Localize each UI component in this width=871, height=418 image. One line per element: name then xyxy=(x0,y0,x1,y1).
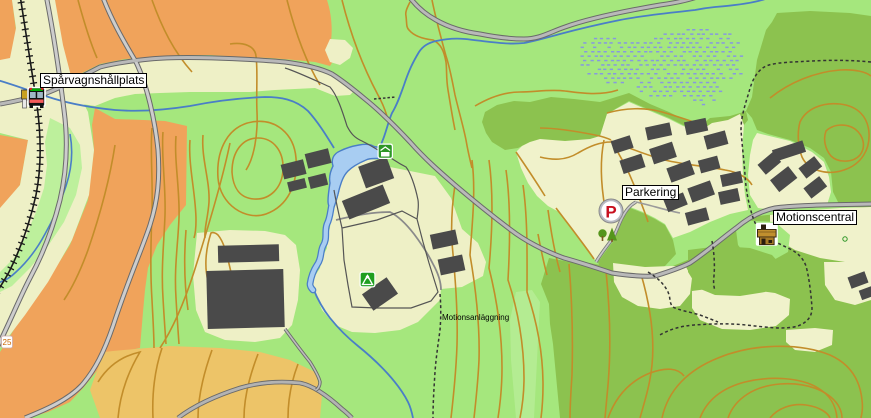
svg-text:P: P xyxy=(605,203,616,222)
svg-text:25: 25 xyxy=(3,338,12,347)
